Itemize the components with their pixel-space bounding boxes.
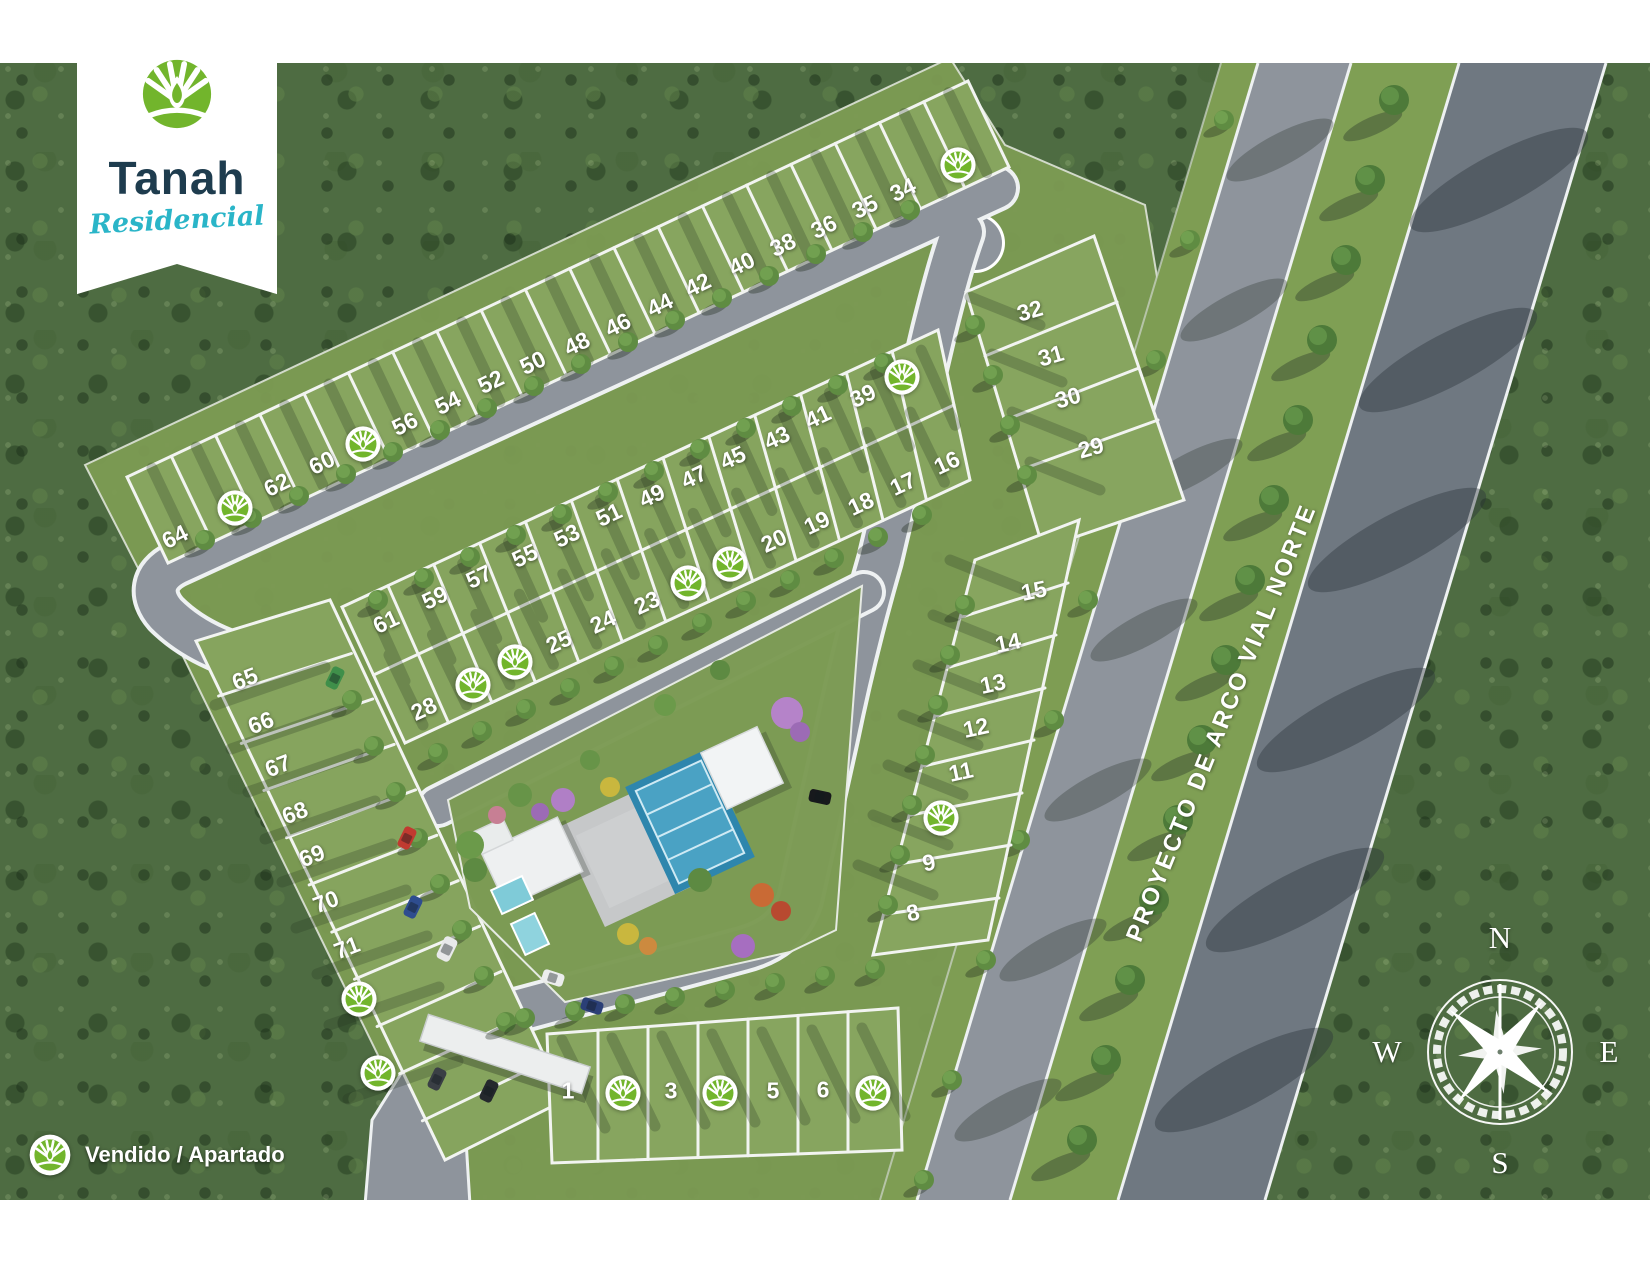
compass-east-label: E: [1600, 1034, 1619, 1070]
legend-label: Vendido / Apartado: [85, 1142, 285, 1168]
sold-badge-icon: [28, 1133, 72, 1177]
brand-name: Tanah: [77, 151, 277, 205]
legend: Vendido / Apartado: [28, 1133, 285, 1177]
brand-subtitle: Residencial: [76, 200, 277, 241]
compass-north-label: N: [1489, 920, 1511, 956]
tanah-logo-icon: [129, 46, 225, 142]
compass-rose: [1407, 959, 1593, 1145]
compass-south-label: S: [1491, 1145, 1508, 1181]
compass-west-label: W: [1372, 1034, 1401, 1070]
lot-block-south: [547, 1008, 905, 1163]
